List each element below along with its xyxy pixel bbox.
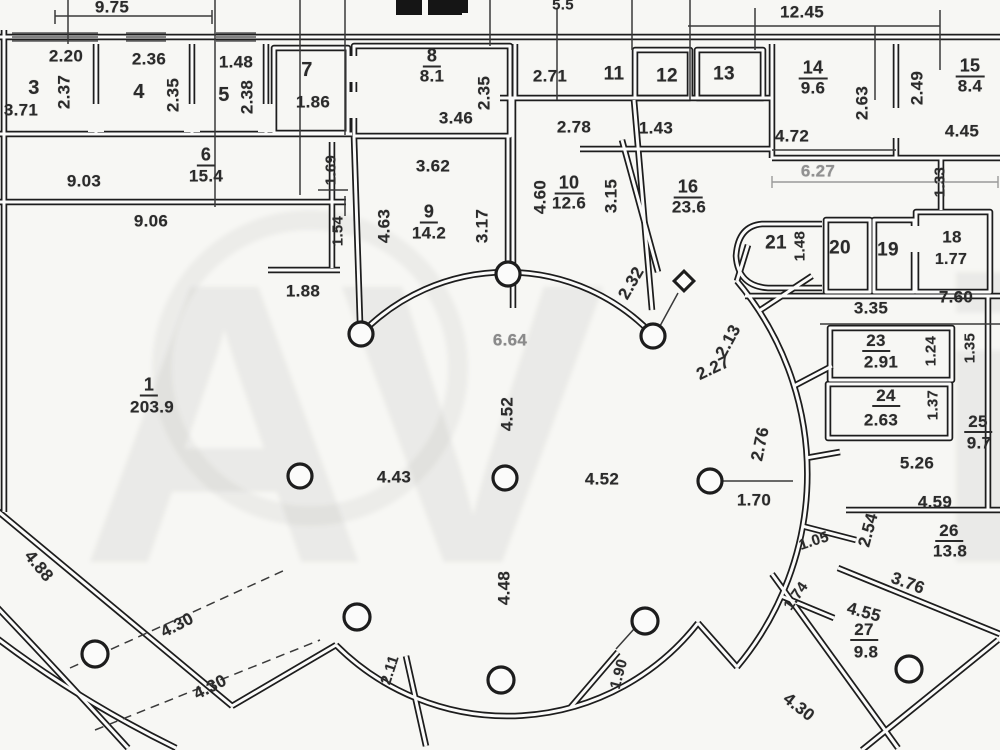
dim-label: 3.62 [416, 158, 450, 175]
dim-label: 9.7 [967, 435, 992, 452]
dim-label: 5.5 [552, 0, 574, 13]
dim-label: 18 [942, 229, 962, 246]
dim-label: 2.76 [748, 425, 772, 462]
dim-label: 8 [423, 47, 441, 68]
dim-label: 1.90 [608, 657, 630, 690]
dim-label: 203.9 [130, 399, 174, 416]
dim-label: 3 [28, 78, 39, 98]
dim-label: 2.27 [694, 353, 732, 383]
dim-label: 1.37 [926, 390, 941, 420]
dim-label: 2.20 [49, 48, 83, 65]
dim-label: 6 [197, 146, 215, 167]
dim-label: 4.30 [158, 610, 196, 641]
dim-label: 7 [301, 60, 312, 80]
dim-label: 12.6 [552, 195, 586, 212]
dim-label: 4.30 [780, 690, 817, 725]
dim-label: 12 [656, 67, 678, 86]
dim-label: 15.4 [189, 168, 223, 185]
dim-label: 1.86 [296, 94, 330, 111]
dim-label: 2.54 [855, 511, 880, 549]
dim-label: 3.35 [854, 300, 888, 317]
dim-label: 19 [877, 241, 899, 260]
dim-label: 1.74 [781, 579, 811, 613]
dim-label: 2.71 [533, 68, 567, 85]
dim-label: 16 [674, 178, 703, 199]
dim-label: 9.03 [67, 173, 101, 190]
dim-label: 12.45 [780, 4, 824, 21]
dim-label: 7.60 [939, 289, 973, 306]
dim-label: 1.48 [793, 231, 808, 261]
dim-label: 2.63 [854, 86, 871, 120]
dim-label: 2.32 [615, 264, 647, 302]
dimension-labels-layer: 9.755.512.452.2032.373.712.3642.351.4852… [0, 0, 1000, 750]
dim-label: 4.59 [918, 494, 952, 511]
dim-label: 27 [850, 621, 878, 641]
dim-label: 6.64 [493, 332, 527, 349]
dim-label: 10 [555, 174, 584, 195]
dim-label: 1.70 [737, 492, 771, 509]
dim-label: 4 [133, 82, 144, 102]
dim-label: 14.2 [412, 225, 446, 242]
dim-label: 9.6 [801, 80, 826, 97]
dim-label: 11 [604, 65, 625, 84]
dim-label: 1.05 [797, 529, 831, 553]
dim-label: 1.54 [331, 216, 346, 246]
dim-label: 24 [872, 387, 900, 407]
dim-label: 3.71 [4, 102, 38, 119]
dim-label: 1.88 [286, 283, 320, 300]
dim-label: 4.45 [945, 123, 979, 140]
dim-label: 26 [935, 522, 963, 542]
dim-label: 2.11 [378, 654, 401, 687]
dim-label: 2.78 [557, 119, 591, 136]
dim-label: 9.75 [95, 0, 129, 16]
dim-label: 1.43 [639, 120, 673, 137]
dim-label: 9.8 [854, 644, 879, 661]
dim-label: 4.72 [775, 128, 809, 145]
dim-label: 1.24 [924, 336, 939, 366]
dim-label: 1.69 [324, 155, 339, 185]
dim-label: 4.30 [191, 672, 229, 703]
dim-label: 1.77 [935, 252, 967, 268]
dim-label: 9 [420, 203, 438, 224]
dim-label: 4.52 [585, 471, 619, 488]
dim-label: 2.37 [56, 75, 73, 109]
dim-label: 3.76 [889, 569, 927, 597]
dim-label: 14 [799, 59, 828, 80]
dim-label: 1.48 [219, 54, 253, 71]
dim-label: 2.36 [132, 51, 166, 68]
dim-label: 20 [829, 239, 851, 258]
dim-label: 4.88 [21, 547, 56, 584]
dim-label: 2.91 [864, 354, 898, 371]
dim-label: 8.4 [958, 78, 983, 95]
dim-label: 9.06 [134, 213, 168, 230]
dim-label: 8.1 [420, 68, 445, 85]
dim-label: 4.52 [499, 397, 516, 431]
dim-label: 2.38 [239, 80, 256, 114]
dim-label: 25 [964, 413, 992, 433]
dim-label: 3.46 [439, 110, 473, 127]
dim-label: 3.17 [474, 209, 491, 243]
dim-label: 5 [218, 85, 229, 105]
dim-label: 4.60 [532, 180, 549, 214]
dim-label: 5.26 [900, 455, 934, 472]
dim-label: 13 [713, 65, 735, 84]
dim-label: 4.43 [377, 469, 411, 486]
dim-label: 15 [956, 57, 985, 78]
dim-label: 2.63 [864, 412, 898, 429]
dim-label: 4.48 [496, 571, 513, 605]
dim-label: 23 [862, 332, 890, 352]
dim-label: 2.35 [476, 76, 493, 110]
dim-label: 2.49 [909, 71, 926, 105]
dim-label: 6.27 [801, 163, 835, 180]
dim-label: 1.35 [963, 333, 978, 363]
dim-label: 4.63 [376, 209, 393, 243]
dim-label: 21 [765, 234, 787, 253]
dim-label: 1 [140, 376, 158, 397]
floor-plan-scan: AV i [0, 0, 1000, 750]
dim-label: 13.8 [933, 543, 967, 560]
dim-label: 2.35 [165, 78, 182, 112]
dim-label: 1.33 [933, 167, 948, 197]
dim-label: 23.6 [672, 199, 706, 216]
dim-label: 3.15 [603, 179, 620, 213]
